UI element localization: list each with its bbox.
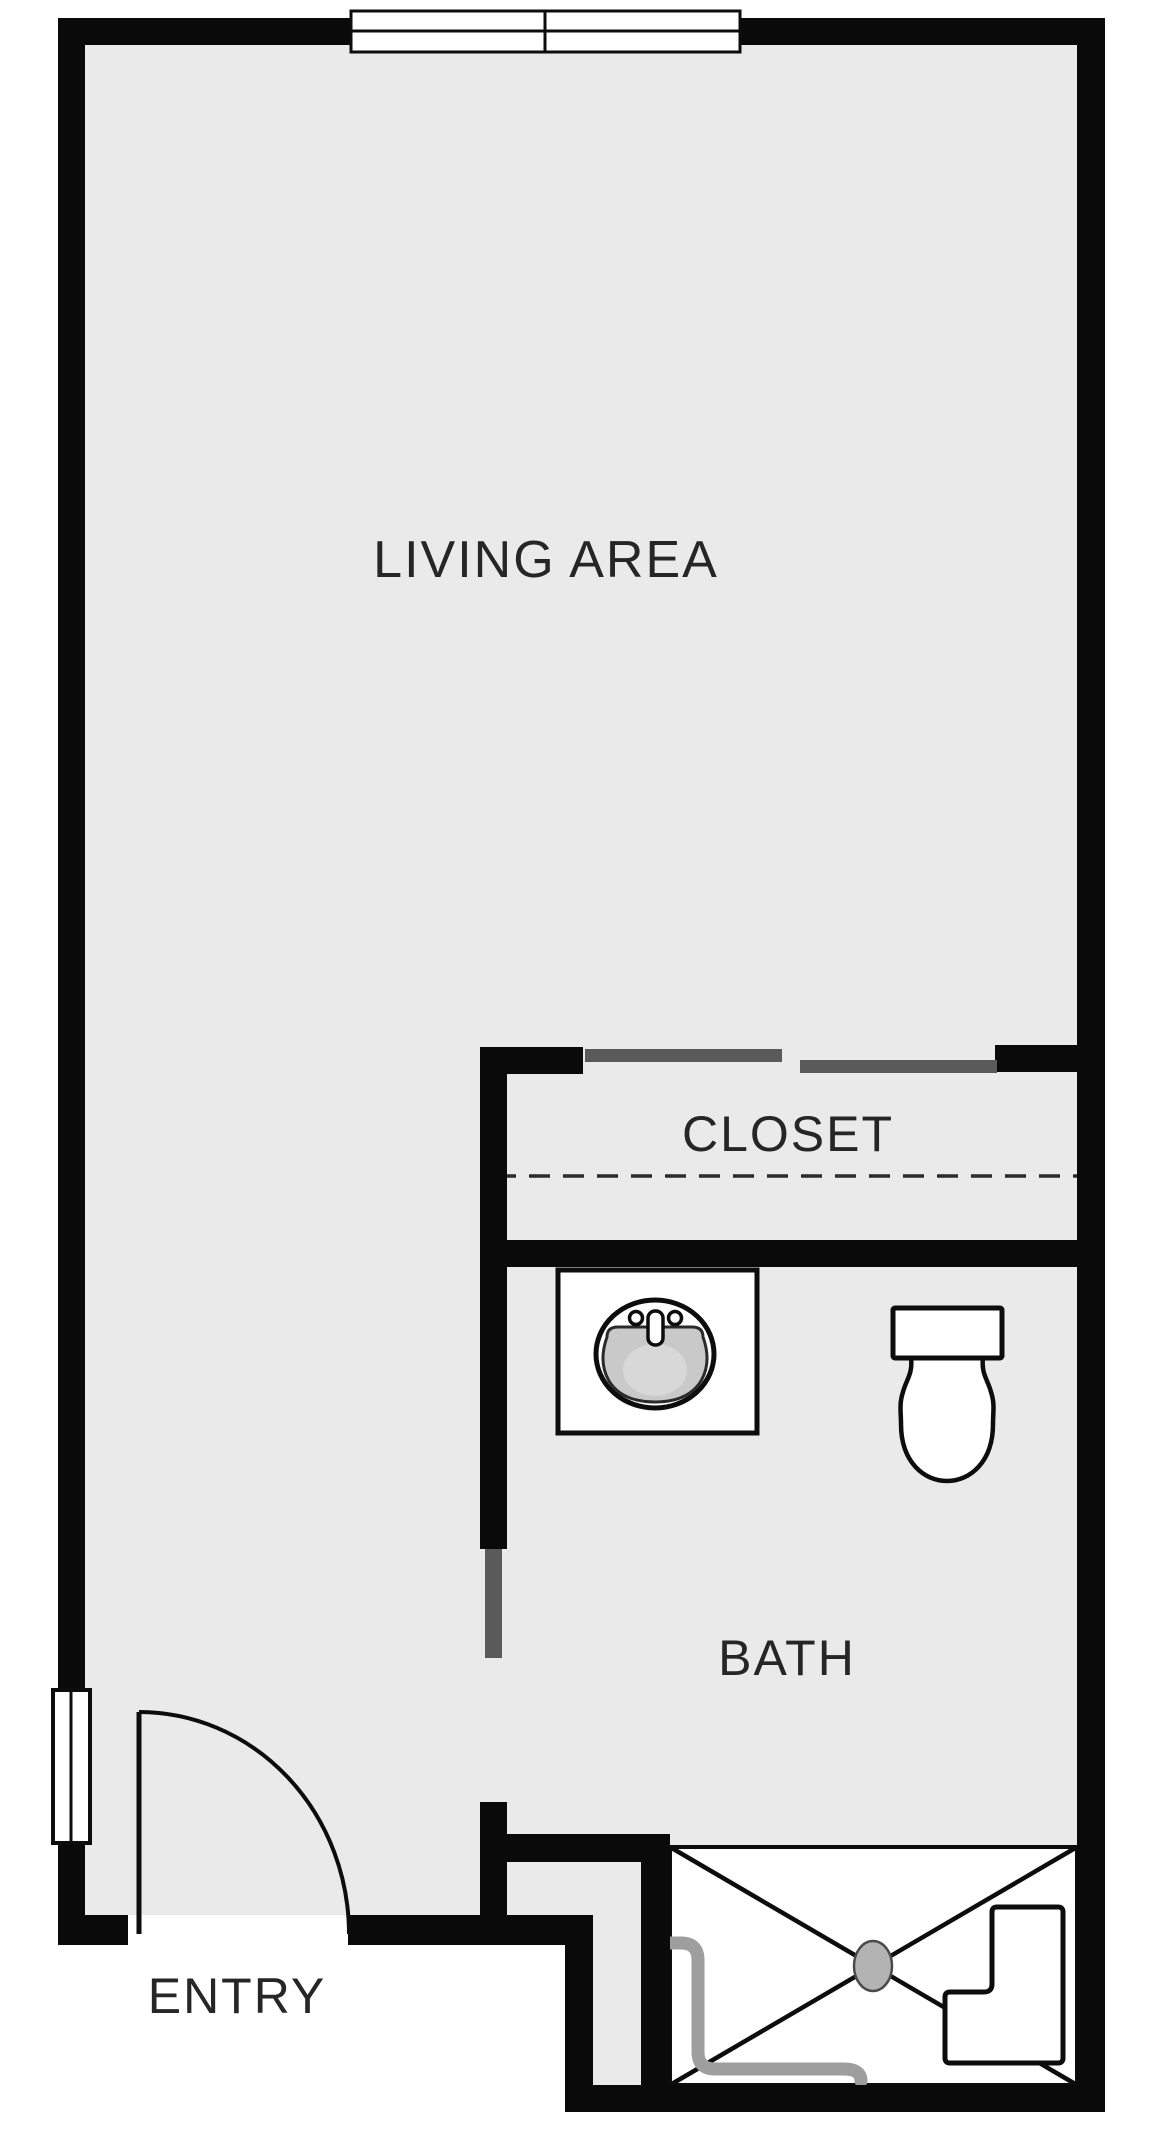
floor-plan: LIVING AREA CLOSET BATH ENTRY [0,0,1155,2134]
wall-right [1077,18,1105,2112]
living-area-label: LIVING AREA [373,531,719,589]
toilet-tank [893,1308,1002,1358]
wall-bottom-left [58,1915,128,1945]
bath-label: BATH [718,1630,856,1686]
faucet-handle-left [630,1312,643,1325]
closet-label: CLOSET [682,1106,894,1162]
bath-door-panel [485,1549,502,1658]
sink-basin-highlight [623,1344,687,1396]
wall-closet-top-right-stub [995,1045,1077,1072]
toilet-bowl [901,1358,994,1481]
floor-plan-drawing: LIVING AREA CLOSET BATH ENTRY [0,0,1155,2134]
closet-sliding-door-right [800,1060,997,1073]
wall-bath-stub [480,1802,507,1945]
vanity-sink [558,1270,757,1433]
wall-left-upper [58,18,85,1690]
shower-drain [854,1941,892,1991]
wall-bath-top [480,1240,1077,1267]
faucet-spout [648,1311,663,1345]
faucet-handle-right [669,1312,682,1325]
toilet [893,1308,1002,1481]
wall-closet-top-left-stub [480,1047,583,1074]
closet-sliding-door-left [585,1049,782,1062]
wall-closet-left [480,1047,507,1549]
entry-label: ENTRY [148,1968,327,2024]
wall-bottom-entry [348,1915,593,1945]
shower [670,1847,1077,2085]
wall-shower-left [641,1834,670,2112]
